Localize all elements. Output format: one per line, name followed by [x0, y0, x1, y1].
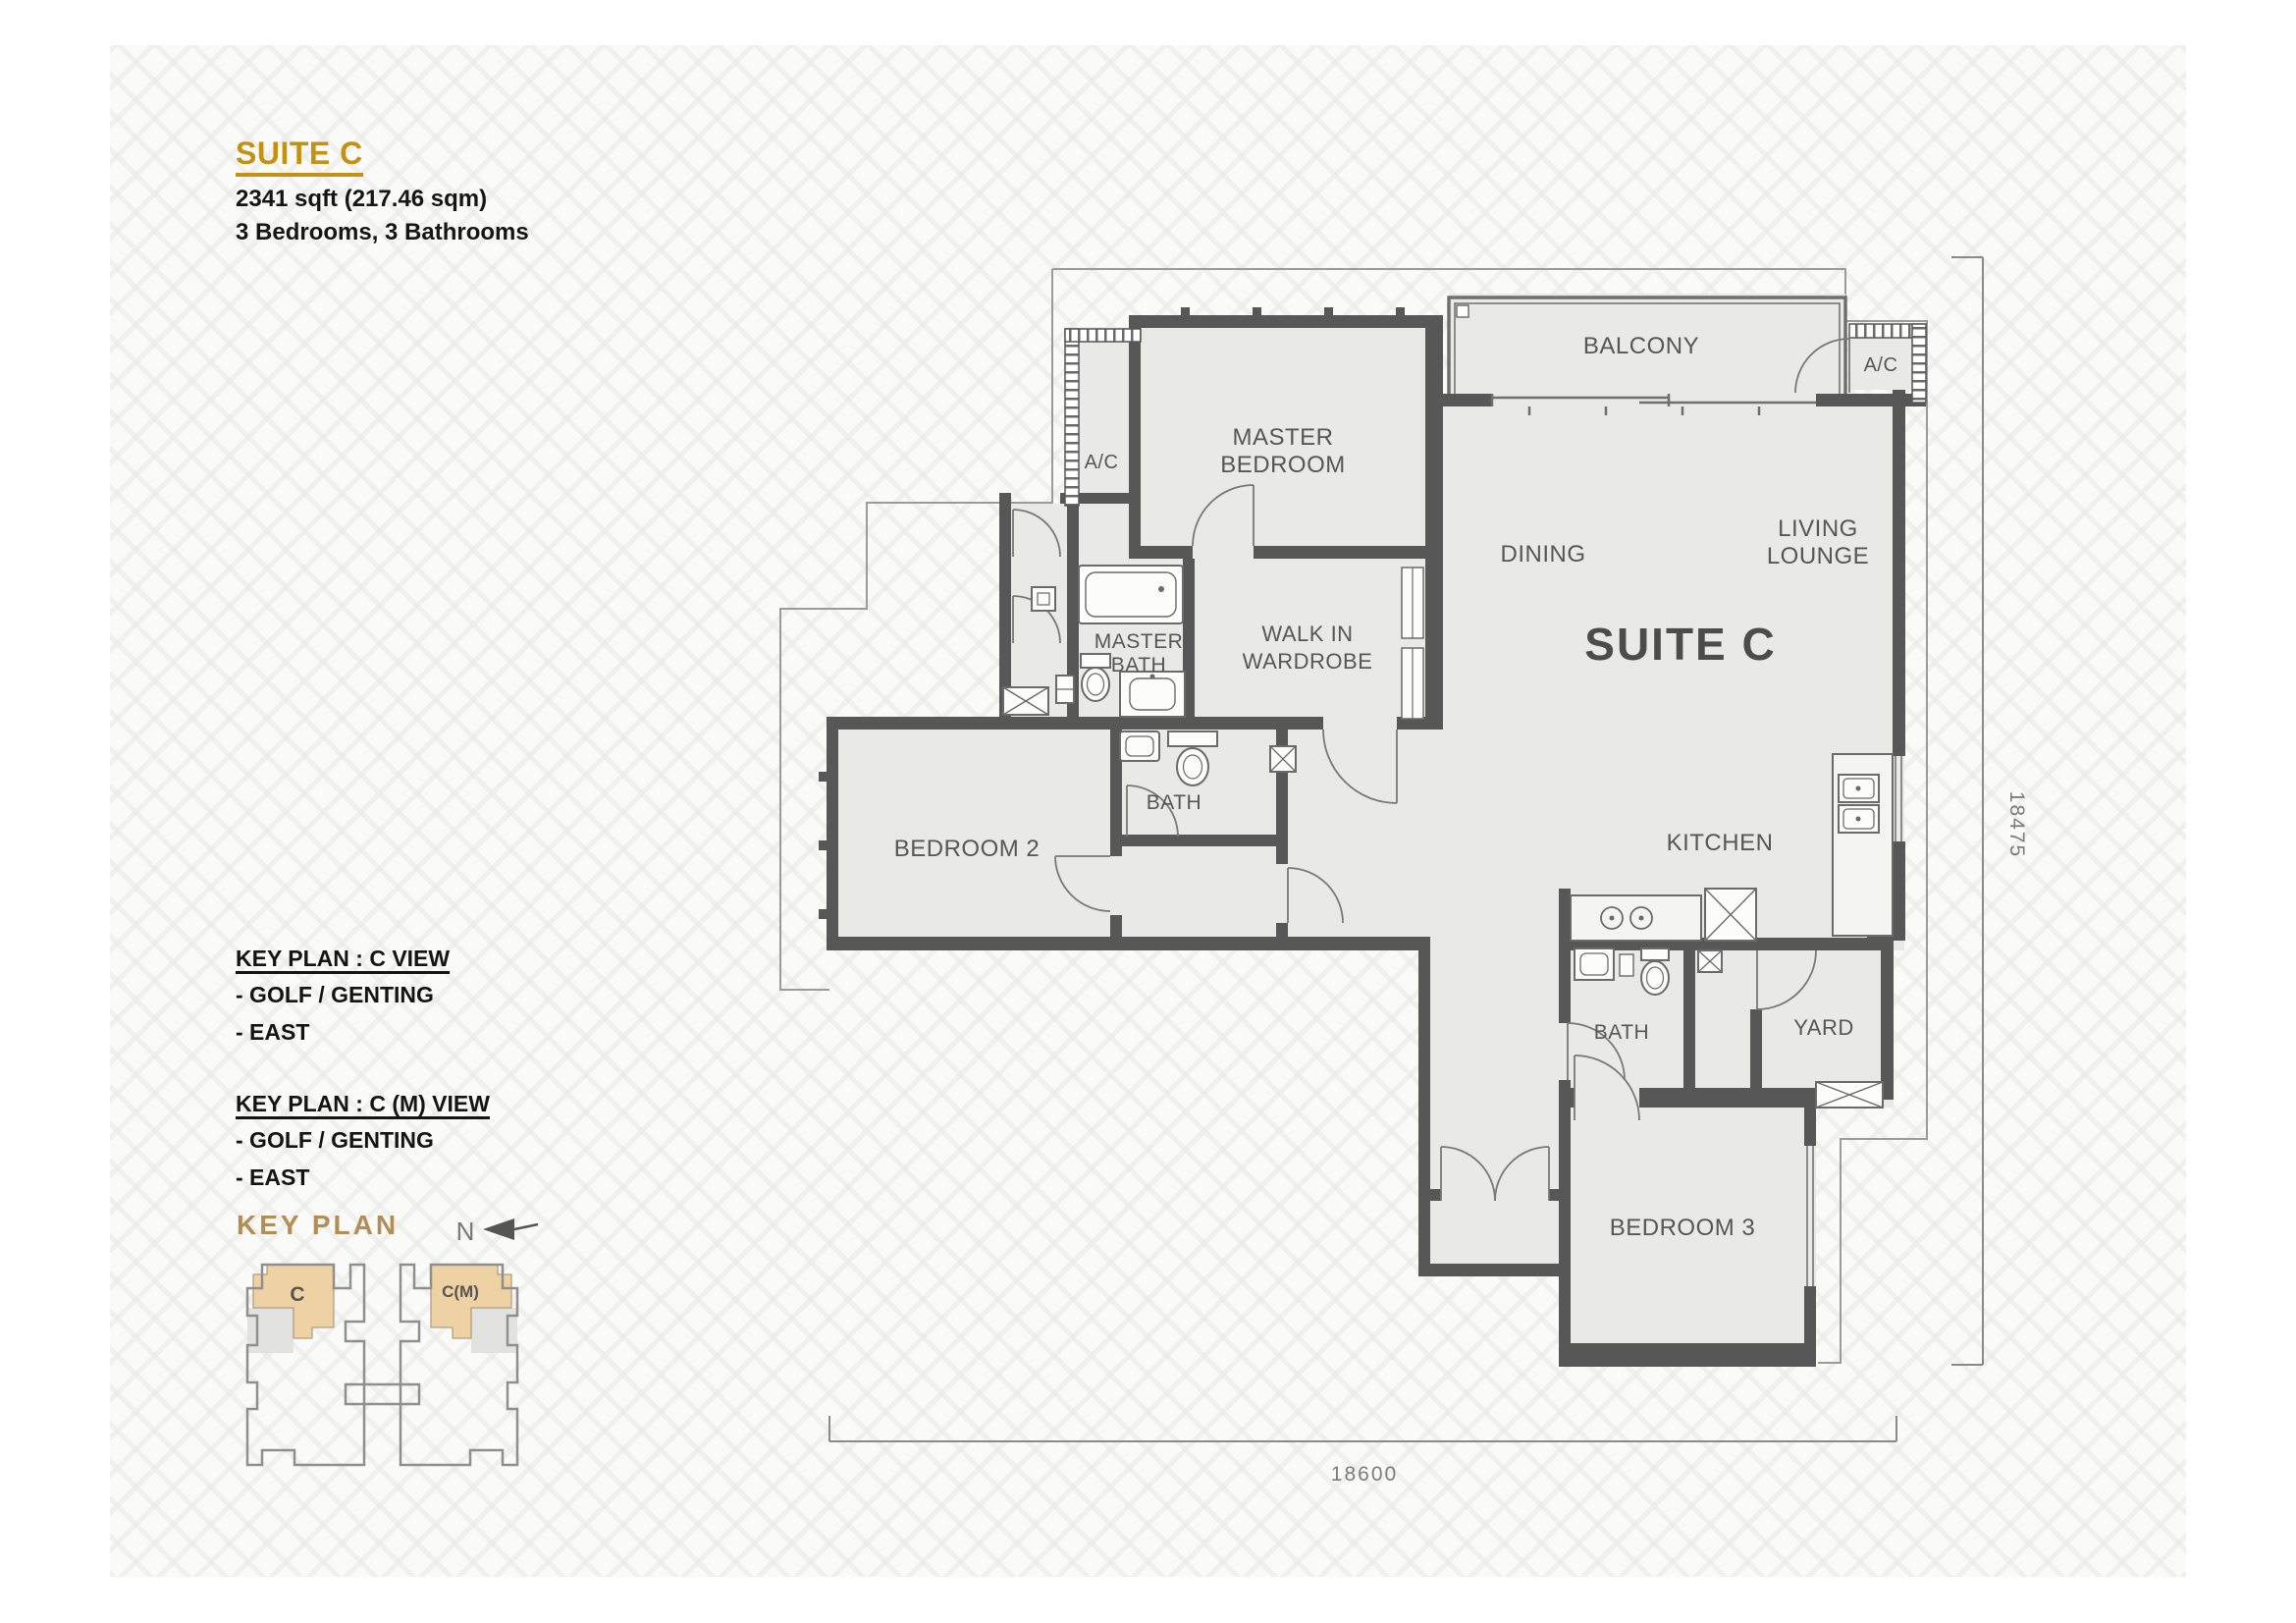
shower-head — [1032, 587, 1055, 611]
toilet-tank-bath2 — [1168, 731, 1217, 746]
dimension-right-label: 18475 — [2005, 791, 2028, 858]
label-living-1: LIVING — [1778, 515, 1858, 542]
toilet-bath3 — [1641, 961, 1669, 995]
shaft-box-2 — [1270, 746, 1296, 772]
fridge-bay — [1705, 889, 1756, 941]
toilet-tank-master — [1081, 654, 1110, 668]
north-indicator: N — [456, 1217, 538, 1246]
dimension-right — [1951, 257, 1983, 1365]
keyplan-label-cm: C(M) — [442, 1282, 479, 1301]
bathtub — [1079, 566, 1183, 623]
label-bedroom3: BEDROOM 3 — [1610, 1215, 1756, 1241]
keyplan-diagram: C C(M) — [247, 1265, 517, 1465]
label-walk-in-1: WALK IN — [1261, 622, 1353, 646]
label-yard: YARD — [1793, 1015, 1854, 1040]
label-kitchen: KITCHEN — [1667, 830, 1774, 856]
label-bath2: BATH — [1147, 791, 1201, 814]
shaft-box-3 — [1698, 950, 1722, 972]
label-bath3: BATH — [1594, 1021, 1649, 1044]
toilet-bath2 — [1177, 748, 1208, 785]
north-label: N — [456, 1217, 475, 1246]
floor-plan: 18475 18600 BALCONY A/C A/C MASTER BEDRO… — [0, 0, 2296, 1623]
label-walk-in-2: WARDROBE — [1243, 649, 1373, 674]
toilet-tank-bath3 — [1641, 948, 1669, 960]
toilet-master — [1082, 668, 1109, 701]
label-suite: SUITE C — [1584, 619, 1776, 670]
shaft-box-1 — [1003, 687, 1048, 715]
heater-bath3 — [1620, 954, 1633, 976]
label-ac-right: A/C — [1864, 354, 1898, 376]
label-living-2: LOUNGE — [1767, 543, 1869, 569]
dimension-bottom-label: 18600 — [1331, 1463, 1398, 1486]
label-balcony: BALCONY — [1583, 333, 1699, 359]
kitchen-counter — [1571, 895, 1701, 941]
ac-ledge-box — [1816, 1082, 1883, 1108]
north-arrow-icon — [483, 1218, 514, 1240]
label-bedroom2: BEDROOM 2 — [894, 836, 1041, 862]
label-master-bath-2: BATH — [1111, 654, 1166, 676]
label-dining: DINING — [1501, 541, 1586, 568]
keyplan-label-c: C — [290, 1283, 304, 1306]
dimension-bottom — [829, 1416, 1896, 1441]
label-master-2: BEDROOM — [1220, 452, 1346, 478]
label-master-bath-1: MASTER — [1095, 630, 1184, 653]
label-master-1: MASTER — [1232, 424, 1333, 451]
label-ac-left: A/C — [1085, 452, 1119, 473]
